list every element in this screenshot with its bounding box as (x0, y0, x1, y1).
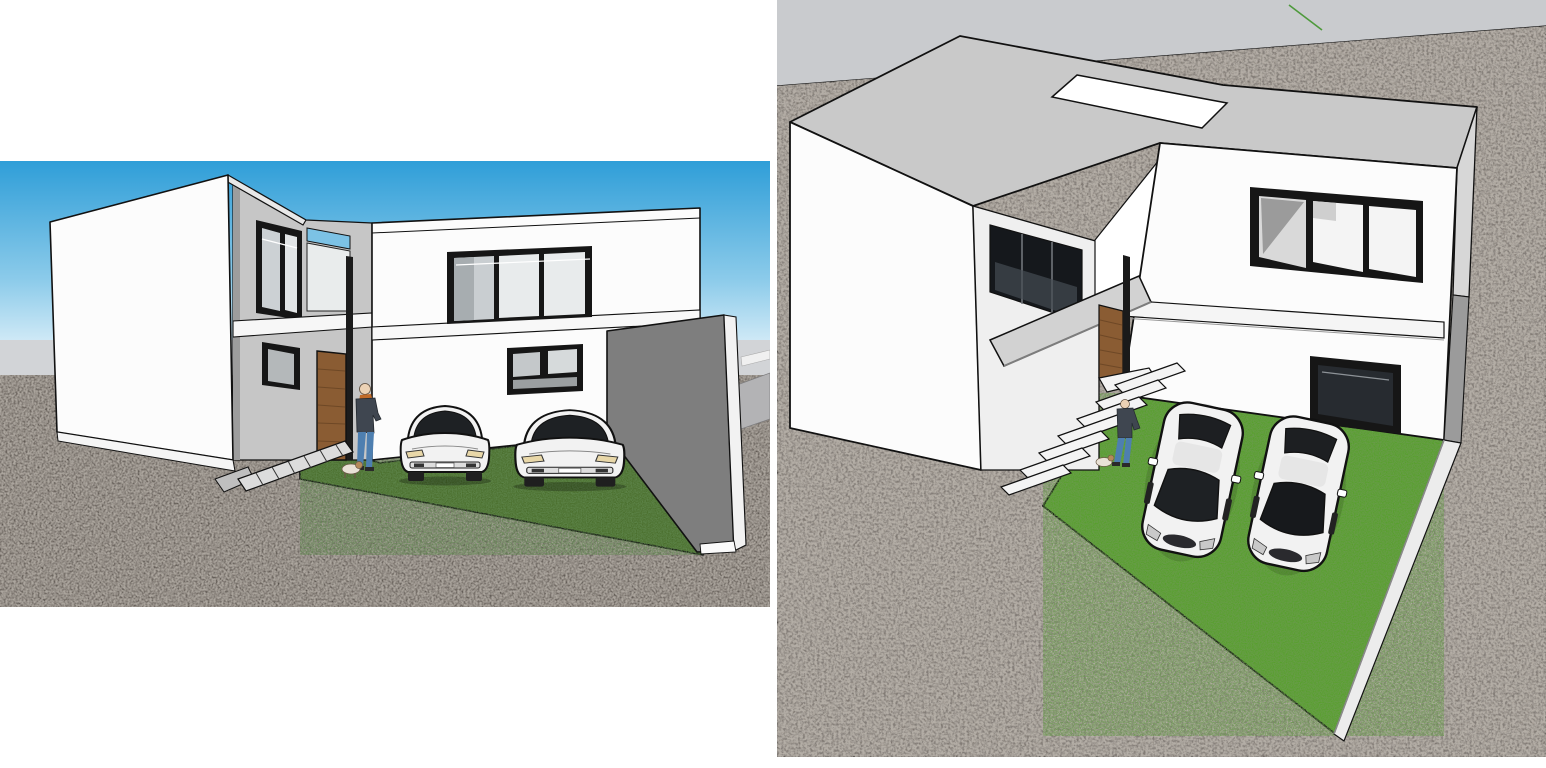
screenshot-canvas (0, 0, 1546, 768)
lower-window (507, 344, 583, 395)
upper-window (447, 246, 592, 324)
aerial-view-svg (777, 0, 1546, 757)
recess-upper-window (256, 220, 302, 320)
right-wing-front (1122, 143, 1457, 440)
left-wing-front-wall (50, 175, 233, 460)
door-side-panel (346, 256, 353, 460)
recess-lower-window (262, 342, 300, 390)
exterior-view-panel (0, 161, 770, 607)
exterior-view-svg (0, 161, 770, 607)
aerial-view-panel (777, 0, 1546, 757)
entry-glass-panel (307, 243, 350, 311)
